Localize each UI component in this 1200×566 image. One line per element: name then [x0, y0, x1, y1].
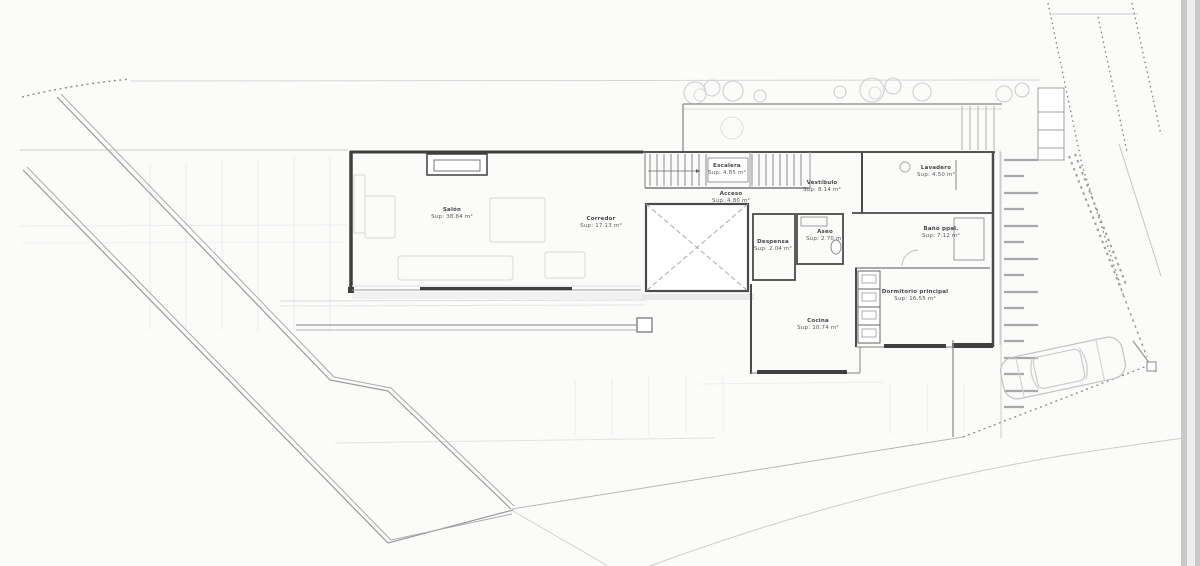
room-area: Sup: 2.04 m²	[754, 246, 792, 253]
room-area: Sup: 16.55 m²	[882, 296, 949, 303]
room-label-escalera: Escalera Sup: 4.85 m²	[708, 163, 746, 177]
room-name: Acceso	[712, 191, 750, 198]
room-label-despensa: Despensa Sup: 2.04 m²	[754, 239, 792, 253]
room-area: Sup: 2.70 m²	[806, 236, 844, 243]
door-swing	[902, 250, 918, 266]
planter	[1038, 88, 1064, 160]
floor-plan-drawing	[0, 0, 1200, 566]
photo-border	[1181, 0, 1200, 566]
room-name: Vestíbulo	[803, 180, 841, 187]
sofa	[398, 256, 513, 280]
room-label-salon: Salón Sup: 38.64 m²	[431, 207, 473, 221]
glazed-sliding-door	[420, 287, 572, 290]
washer-fixture	[900, 162, 910, 172]
room-name: Dormitorio principal	[882, 289, 949, 296]
room-area: Sup: 4.85 m²	[708, 170, 746, 177]
porch-edge	[280, 300, 652, 332]
room-area: Sup: 10.74 m²	[797, 325, 839, 332]
room-name: Cocina	[797, 318, 839, 325]
room-name: Aseo	[806, 229, 844, 236]
room-name: Escalera	[708, 163, 746, 170]
boundary-corner-marker	[1147, 362, 1156, 371]
room-area: Sup: 4.50 m²	[917, 172, 955, 179]
room-label-cocina: Cocina Sup: 10.74 m²	[797, 318, 839, 332]
exterior-ramp-hatching	[1001, 152, 1147, 438]
room-area: Sup: 7.12 m²	[922, 233, 960, 240]
room-label-vestibulo: Vestíbulo Sup: 8.14 m²	[803, 180, 841, 194]
site-boundaries	[22, 3, 1161, 543]
room-label-banio: Baño ppal. Sup: 7.12 m²	[922, 226, 960, 240]
exterior-steps	[962, 106, 994, 150]
furniture	[354, 175, 585, 280]
room-area: Sup: 4.80 m²	[712, 198, 750, 205]
room-name: Baño ppal.	[922, 226, 960, 233]
void-cross	[646, 204, 748, 291]
wardrobe-units	[858, 271, 880, 343]
floor-plan-photo: Salón Sup: 38.64 m² Corredor Sup: 17.13 …	[0, 0, 1200, 566]
room-name: Despensa	[754, 239, 792, 246]
room-area: Sup: 8.14 m²	[803, 187, 841, 194]
room-label-dormitorio: Dormitorio principal Sup: 16.55 m²	[882, 289, 949, 303]
room-label-acceso: Acceso Sup: 4.80 m²	[712, 191, 750, 205]
room-label-lavadero: Lavadero Sup: 4.50 m²	[917, 165, 955, 179]
room-name: Salón	[431, 207, 473, 214]
porch-pillar	[637, 318, 652, 332]
side-table	[490, 198, 545, 242]
room-area: Sup: 17.13 m²	[580, 223, 622, 230]
room-name: Lavadero	[917, 165, 955, 172]
room-area: Sup: 38.64 m²	[431, 214, 473, 221]
room-label-aseo: Aseo Sup: 2.70 m²	[806, 229, 844, 243]
armchair	[365, 196, 395, 238]
room-name: Corredor	[580, 216, 622, 223]
room-label-corredor: Corredor Sup: 17.13 m²	[580, 216, 622, 230]
fireplace	[427, 154, 487, 175]
